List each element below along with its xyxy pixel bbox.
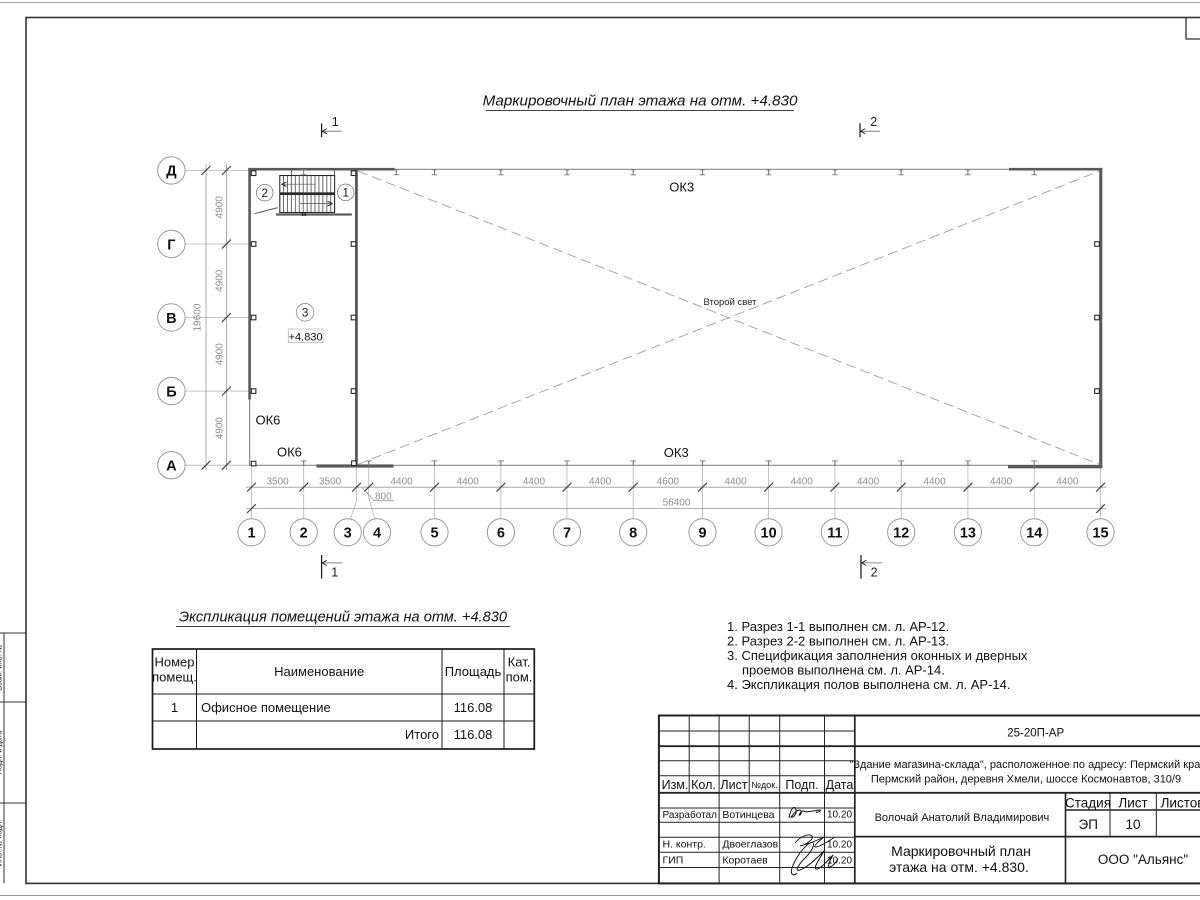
svg-text:15: 15 <box>1092 526 1108 542</box>
svg-text:4900: 4900 <box>214 417 225 440</box>
svg-text:4400: 4400 <box>791 476 814 487</box>
svg-text:2: 2 <box>871 565 878 579</box>
svg-text:Кат.: Кат. <box>508 655 531 670</box>
svg-text:Итого: Итого <box>405 727 439 742</box>
svg-text:1: 1 <box>171 700 178 715</box>
svg-text:№док.: №док. <box>751 780 777 790</box>
svg-text:6: 6 <box>497 526 505 542</box>
svg-text:2. Разрез 2-2 выполнен см. л.: 2. Разрез 2-2 выполнен см. л. АР-13. <box>727 633 949 648</box>
svg-text:проемов выполнена см. л. АР-14: проемов выполнена см. л. АР-14. <box>742 662 945 677</box>
svg-text:11: 11 <box>827 526 842 542</box>
svg-text:ОК3: ОК3 <box>664 445 689 460</box>
svg-text:10.20: 10.20 <box>827 840 852 851</box>
svg-text:4900: 4900 <box>214 269 225 292</box>
svg-text:7: 7 <box>563 526 571 542</box>
svg-text:Площадь: Площадь <box>445 664 502 679</box>
svg-text:4400: 4400 <box>990 476 1013 487</box>
svg-text:Наименование: Наименование <box>274 664 364 679</box>
svg-text:пом.: пом. <box>506 670 533 685</box>
svg-text:116.08: 116.08 <box>454 700 493 715</box>
svg-text:3: 3 <box>344 526 352 542</box>
svg-text:ГИП: ГИП <box>663 855 684 867</box>
svg-text:1: 1 <box>331 565 338 579</box>
svg-text:8: 8 <box>629 526 637 542</box>
svg-text:2: 2 <box>870 115 877 129</box>
svg-text:4400: 4400 <box>1056 476 1079 487</box>
svg-text:4400: 4400 <box>923 476 946 487</box>
svg-text:10.20: 10.20 <box>827 810 852 821</box>
svg-text:13: 13 <box>960 526 976 542</box>
svg-text:Стадия: Стадия <box>1065 796 1111 811</box>
svg-text:Двоеглазов: Двоеглазов <box>722 838 778 850</box>
svg-text:Взам. инв. №: Взам. инв. № <box>0 644 4 690</box>
svg-text:4. Экспликация полов выполнена: 4. Экспликация полов выполнена см. л. АР… <box>727 677 1011 692</box>
svg-text:Б: Б <box>166 384 176 400</box>
svg-text:Лист: Лист <box>720 778 747 792</box>
svg-text:1: 1 <box>247 526 255 542</box>
svg-text:4400: 4400 <box>457 476 480 487</box>
svg-text:116.08: 116.08 <box>454 727 493 742</box>
svg-text:4400: 4400 <box>390 476 413 487</box>
svg-text:4900: 4900 <box>214 196 225 219</box>
svg-text:ООО "Альянс": ООО "Альянс" <box>1098 852 1188 867</box>
svg-text:2: 2 <box>261 186 268 200</box>
svg-text:помещ.: помещ. <box>152 670 197 685</box>
svg-text:10: 10 <box>1125 817 1140 832</box>
svg-text:Коротаев: Коротаев <box>722 855 768 867</box>
svg-text:10: 10 <box>761 526 777 542</box>
svg-text:В: В <box>166 311 176 327</box>
svg-text:9: 9 <box>698 526 706 542</box>
svg-text:Н. контр.: Н. контр. <box>663 838 706 850</box>
svg-text:3: 3 <box>302 306 309 320</box>
svg-text:ОК6: ОК6 <box>277 445 302 460</box>
svg-text:Офисное помещение: Офисное помещение <box>201 700 331 715</box>
svg-text:этажа на отм. +4.830.: этажа на отм. +4.830. <box>889 859 1029 875</box>
svg-text:4600: 4600 <box>657 476 680 487</box>
svg-text:25-20П-АР: 25-20П-АР <box>1007 728 1064 740</box>
svg-text:"Здание магазина-склада", расп: "Здание магазина-склада", расположенное … <box>849 759 1200 771</box>
svg-text:1. Разрез 1-1 выполнен см. л.: 1. Разрез 1-1 выполнен см. л. АР-12. <box>727 619 949 634</box>
svg-text:4400: 4400 <box>523 476 546 487</box>
svg-text:3500: 3500 <box>266 476 289 487</box>
svg-text:Изм.: Изм. <box>662 778 689 792</box>
svg-text:ЭП: ЭП <box>1078 817 1097 832</box>
svg-text:4900: 4900 <box>214 343 225 366</box>
svg-text:Подп. и дата: Подп. и дата <box>0 730 4 775</box>
svg-text:Инв. № подл.: Инв. № подл. <box>0 820 4 867</box>
svg-text:Маркировочный план: Маркировочный план <box>891 843 1031 859</box>
svg-text:Д: Д <box>166 164 177 180</box>
svg-text:Номер: Номер <box>154 655 194 670</box>
svg-text:1: 1 <box>342 186 349 200</box>
svg-text:56400: 56400 <box>663 498 691 509</box>
svg-text:800: 800 <box>375 491 392 502</box>
svg-text:1: 1 <box>332 115 339 129</box>
svg-text:ОК3: ОК3 <box>669 180 694 195</box>
svg-text:Экспликация помещений этажа на: Экспликация помещений этажа на отм. +4.8… <box>179 610 507 626</box>
svg-text:4400: 4400 <box>857 476 880 487</box>
svg-text:Волочай Анатолий Владимирович: Волочай Анатолий Владимирович <box>875 812 1050 824</box>
svg-text:4400: 4400 <box>589 476 612 487</box>
svg-text:Листов: Листов <box>1161 796 1200 811</box>
svg-text:Вотинцева: Вотинцева <box>722 809 774 821</box>
svg-text:Маркировочный план этажа на от: Маркировочный план этажа на отм. +4.830 <box>483 93 798 110</box>
svg-text:3500: 3500 <box>319 476 342 487</box>
svg-text:+4.830: +4.830 <box>289 332 323 344</box>
svg-text:19600: 19600 <box>192 303 203 331</box>
svg-text:Пермский район, деревня Хмели,: Пермский район, деревня Хмели, шоссе Кос… <box>871 774 1181 786</box>
svg-text:5: 5 <box>430 526 438 542</box>
svg-text:4400: 4400 <box>724 476 747 487</box>
svg-text:Второй свет: Второй свет <box>703 297 757 308</box>
svg-text:2: 2 <box>300 526 308 542</box>
svg-text:Г: Г <box>167 237 175 253</box>
svg-text:12: 12 <box>893 526 909 542</box>
svg-text:Дата: Дата <box>826 778 854 792</box>
svg-text:ОК6: ОК6 <box>256 413 281 428</box>
svg-text:Кол.: Кол. <box>691 778 716 792</box>
svg-text:Разработал: Разработал <box>663 809 718 821</box>
svg-text:Лист: Лист <box>1118 796 1147 811</box>
svg-text:14: 14 <box>1026 526 1042 542</box>
svg-text:4: 4 <box>373 526 381 542</box>
svg-text:3. Спецификация заполнения око: 3. Спецификация заполнения оконных и две… <box>727 648 1028 663</box>
svg-text:Подп.: Подп. <box>785 778 818 792</box>
svg-text:А: А <box>166 459 177 475</box>
